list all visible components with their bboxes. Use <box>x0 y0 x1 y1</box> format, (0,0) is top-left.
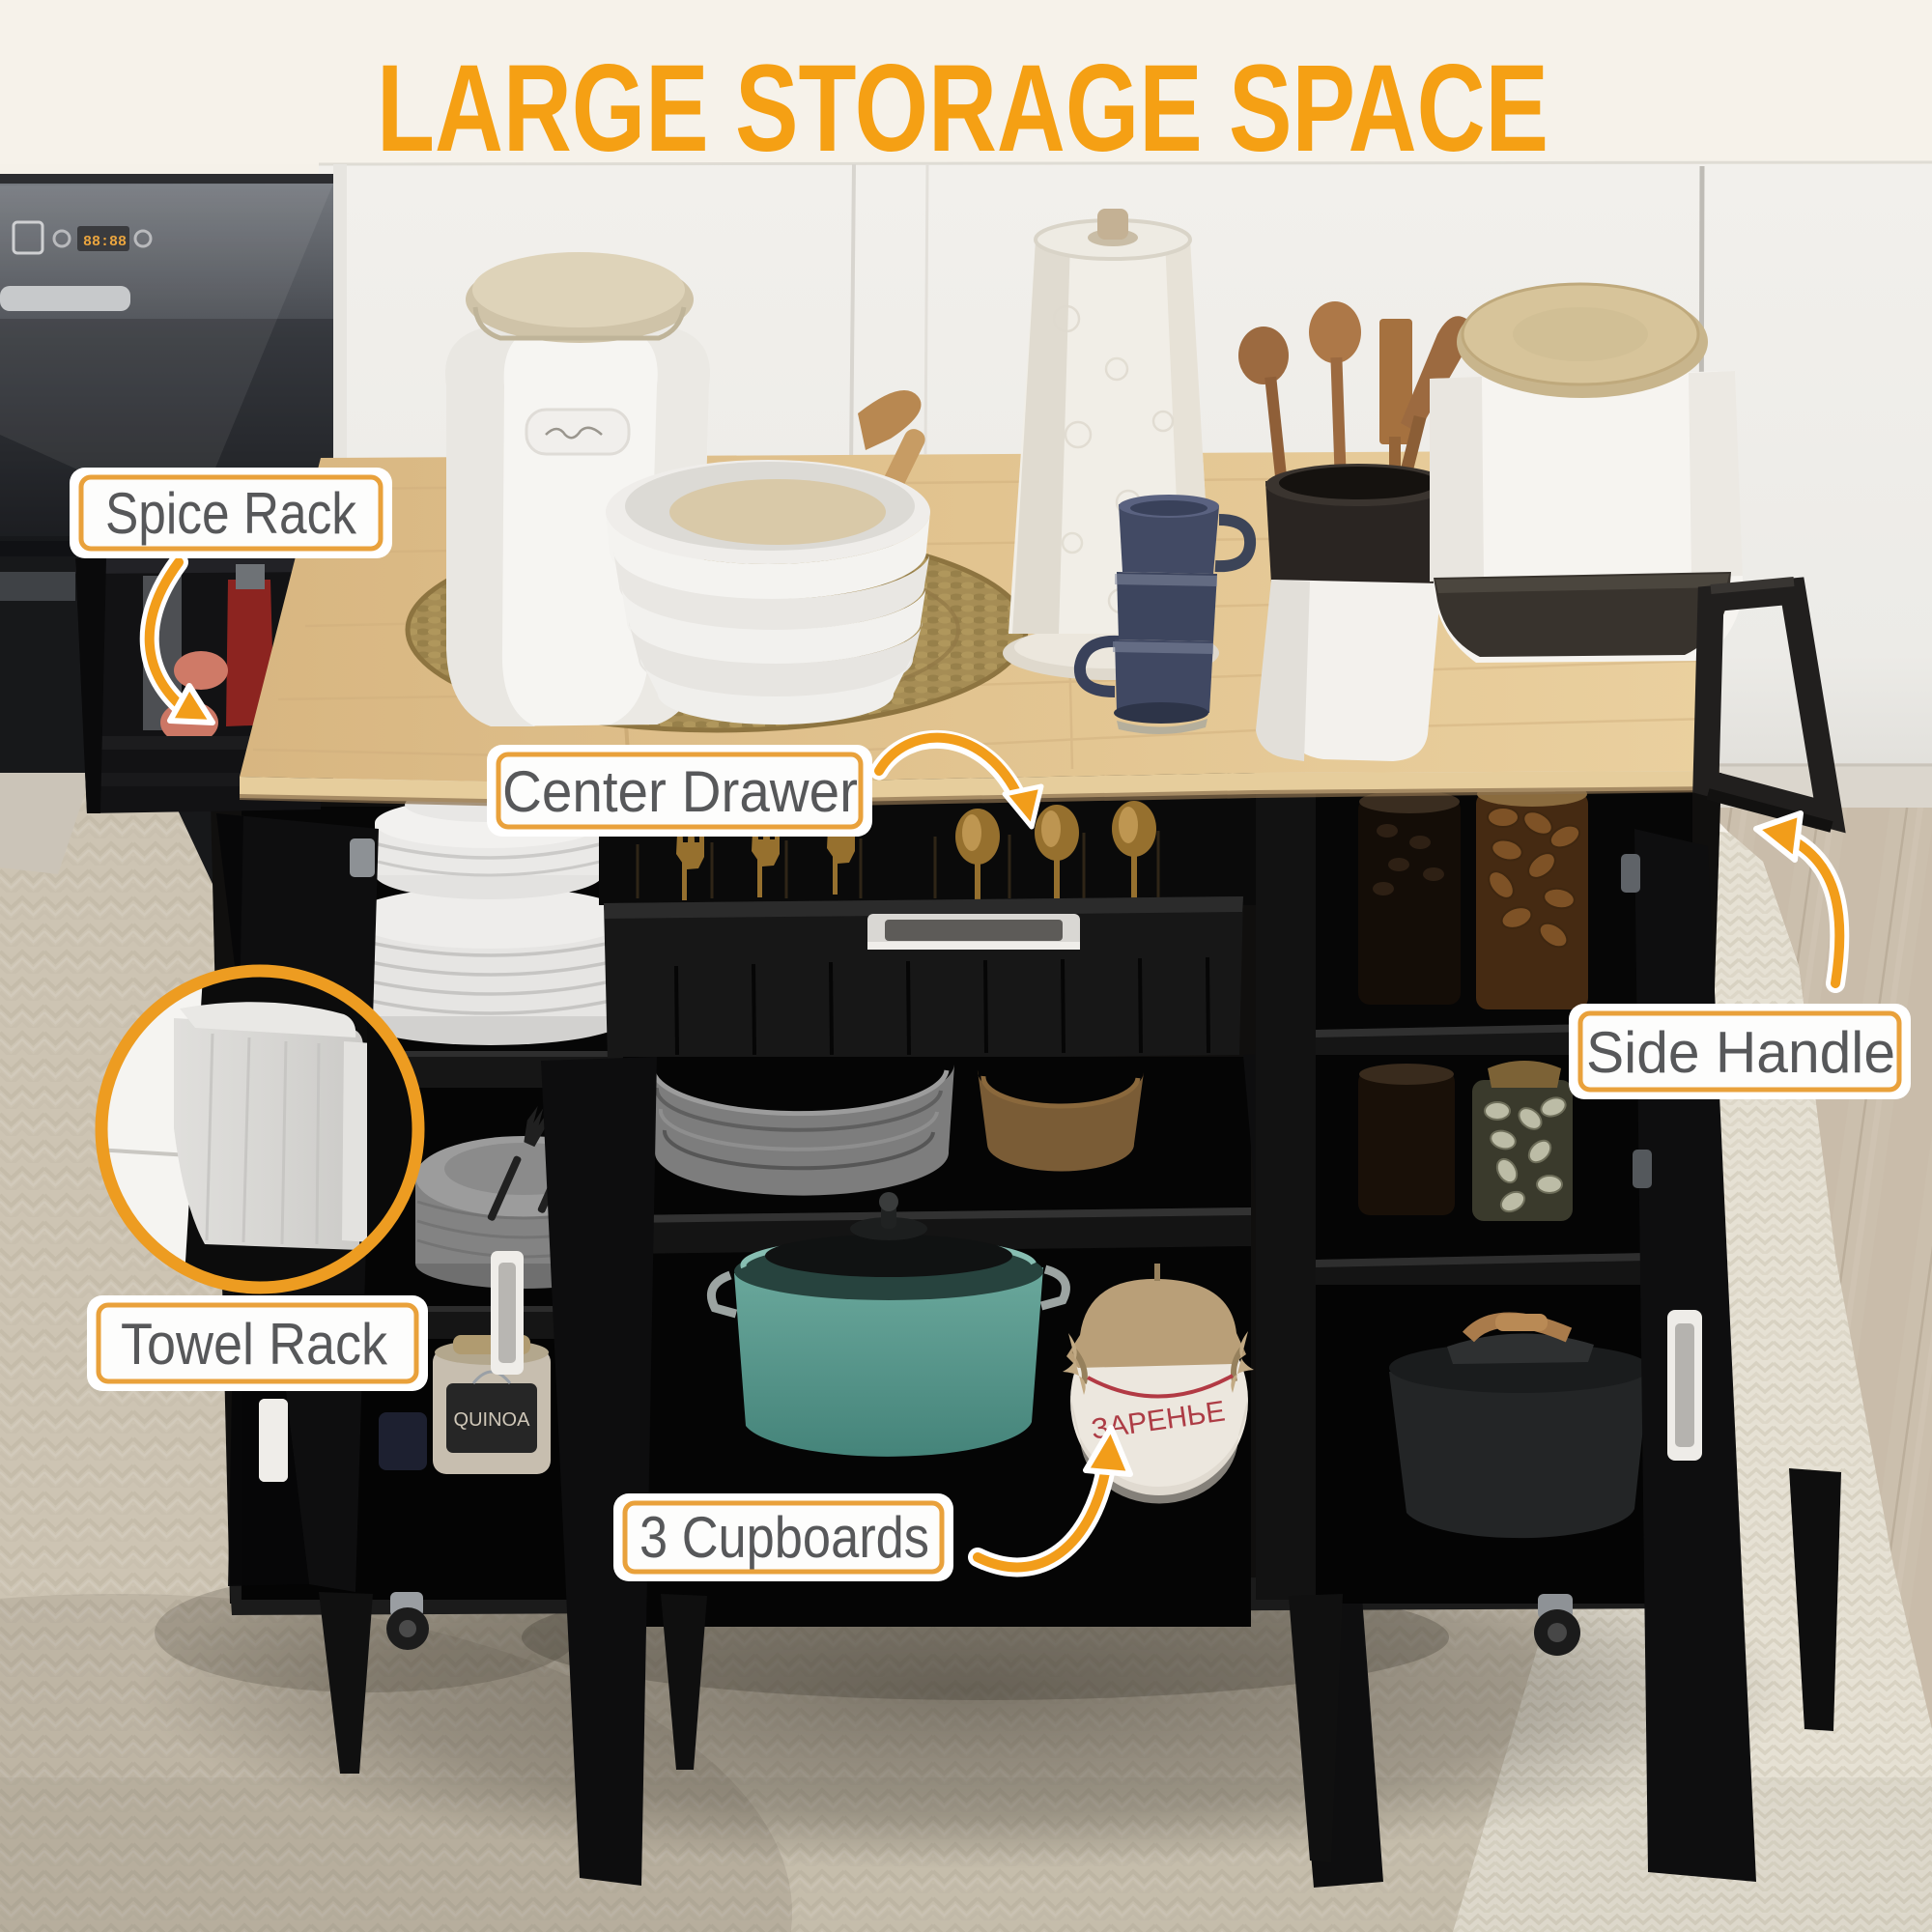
svg-text:Spice Rack: Spice Rack <box>105 481 357 546</box>
svg-text:Towel Rack: Towel Rack <box>121 1312 388 1377</box>
svg-text:QUINOA: QUINOA <box>454 1409 531 1431</box>
svg-text:LARGE STORAGE SPACE: LARGE STORAGE SPACE <box>377 40 1548 178</box>
svg-text:Center Drawer: Center Drawer <box>502 759 858 824</box>
svg-text:88:88: 88:88 <box>83 234 127 250</box>
svg-text:Side Handle: Side Handle <box>1586 1020 1895 1085</box>
svg-text:3 Cupboards: 3 Cupboards <box>639 1505 929 1570</box>
